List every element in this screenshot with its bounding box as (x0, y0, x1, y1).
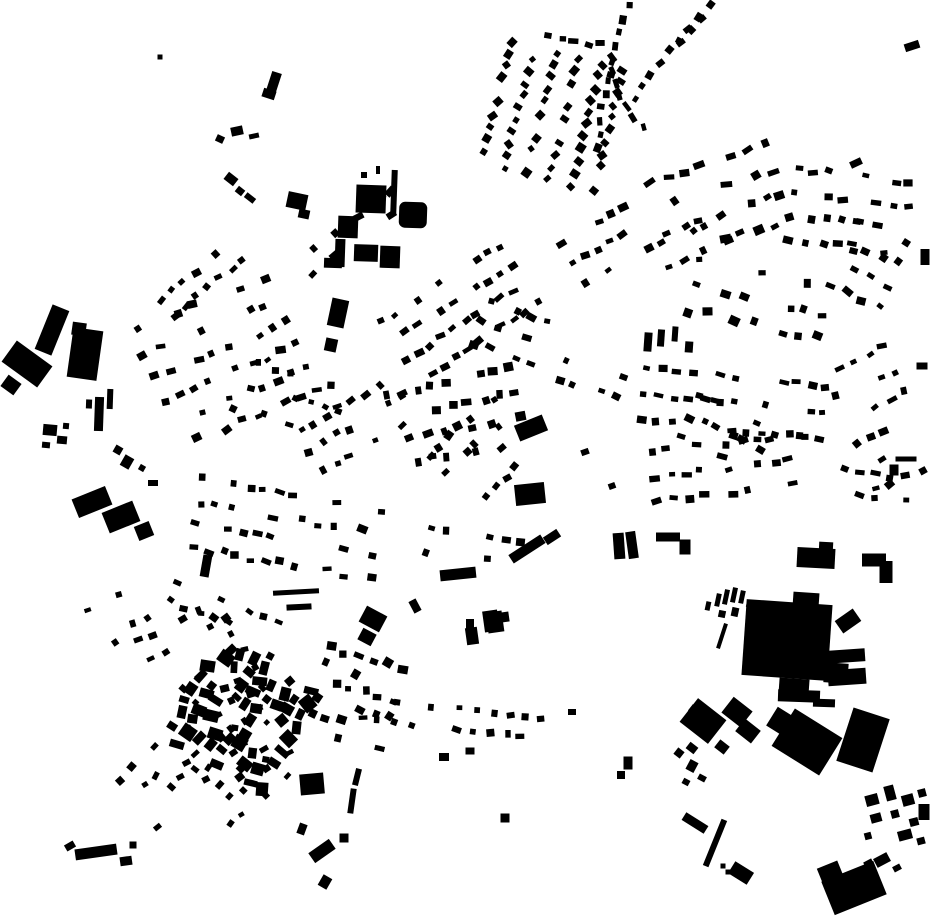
building-footprint (772, 459, 781, 467)
building-footprint (221, 547, 229, 556)
building-footprint (399, 326, 410, 336)
building-chain-north-top-row (544, 32, 605, 49)
building-footprint (671, 369, 681, 375)
building-footprint (156, 343, 166, 349)
building-footprint (616, 229, 628, 240)
building-footprint (225, 792, 234, 801)
building-footprint (523, 66, 535, 77)
building-footprint (414, 296, 423, 305)
building-footprint (728, 861, 754, 885)
building-footprint (501, 536, 511, 544)
building-footprint (399, 202, 428, 229)
building-footprint (408, 722, 416, 730)
building-footprint (563, 102, 573, 112)
building-footprint (483, 248, 492, 256)
building-footprint (655, 58, 665, 68)
building-footprint (208, 612, 219, 623)
building-footprint (238, 811, 245, 818)
building-footprint (840, 465, 849, 473)
building-footprint (318, 874, 333, 889)
building-footprint (404, 433, 414, 442)
building-footprint (758, 431, 765, 436)
building-footprint (778, 330, 788, 338)
building-footprint (676, 433, 685, 440)
building-footprint (339, 574, 348, 580)
building-footprint (457, 705, 463, 710)
building-footprint (508, 288, 519, 296)
building-footprint (804, 279, 811, 288)
building-footprint (285, 421, 294, 428)
building-footprint (320, 714, 330, 723)
building-footprint (215, 134, 225, 144)
building-footprint (515, 734, 524, 740)
building-footprint (86, 399, 92, 408)
building-footprint (472, 447, 480, 456)
building-footprint (856, 296, 867, 306)
building-footprint (909, 817, 920, 827)
building-footprint (793, 592, 820, 609)
building-footprint (166, 782, 176, 792)
building-footprint (247, 385, 256, 393)
building-footprint (449, 401, 458, 409)
building-footprint (259, 745, 269, 754)
building-cluster-ne-suburb-b (682, 257, 826, 341)
building-footprint (215, 780, 225, 790)
building-footprint (779, 379, 790, 386)
building-footprint (486, 123, 495, 131)
building-footprint (496, 443, 506, 453)
building-footprint (428, 525, 436, 531)
building-footprint (333, 680, 342, 688)
building-footprint (443, 527, 450, 535)
building-footprint (866, 272, 875, 280)
building-footprint (247, 651, 261, 667)
building-footprint (120, 454, 135, 469)
building-footprint (63, 423, 70, 430)
building-footprint (679, 169, 690, 178)
building-footprint (786, 430, 794, 437)
building-footprint (608, 113, 616, 121)
building-footprint (594, 246, 603, 255)
building-footprint (217, 596, 225, 604)
building-footprint (235, 186, 246, 196)
building-footprint (228, 748, 238, 757)
building-footprint (791, 189, 798, 195)
building-footprint (259, 487, 266, 492)
building-footprint (390, 170, 398, 214)
building-footprint (526, 360, 536, 368)
building-footprint (640, 391, 647, 397)
building-footprint (338, 545, 349, 553)
building-footprint (368, 552, 377, 560)
building-footprint (741, 599, 832, 681)
building-footprint (134, 325, 143, 334)
building-footprint (896, 457, 917, 462)
figure-ground-map (0, 0, 930, 924)
building-footprint (211, 249, 221, 259)
building-footprint (64, 840, 76, 851)
building-footprint (669, 472, 675, 477)
building-footprint (492, 482, 501, 491)
building-footprint (264, 356, 271, 363)
building-footprint (506, 712, 515, 719)
building-footprint (636, 415, 647, 424)
building-footprint (224, 172, 239, 186)
building-footprint (284, 772, 292, 780)
building-footprint (835, 609, 862, 634)
building-footprint (813, 699, 835, 708)
building-footprint (673, 747, 684, 758)
building-footprint (298, 426, 306, 433)
building-footprint (422, 428, 434, 438)
building-footprint (415, 386, 422, 395)
building-footprint (466, 748, 475, 755)
building-footprint (189, 384, 199, 393)
building-footprint (520, 80, 529, 89)
building-footprint (226, 819, 234, 828)
building-footprint (360, 390, 371, 401)
building-footprint (685, 495, 694, 503)
building-footprint (543, 175, 552, 183)
building-footprint (189, 544, 198, 550)
building-footprint (210, 501, 218, 508)
building-footprint (359, 715, 368, 720)
building-footprint (545, 70, 556, 80)
building-footprint (624, 757, 633, 770)
building-footprint (234, 771, 245, 782)
building-footprint (725, 466, 733, 473)
building-footprint (767, 168, 780, 177)
building-footprint (836, 707, 889, 772)
building-footprint (784, 212, 794, 222)
building-footprint (226, 396, 233, 401)
building-footprint (177, 278, 185, 286)
building-footprint (487, 367, 498, 376)
building-footprint (436, 306, 446, 316)
building-footprint (377, 317, 385, 325)
building-footprint (598, 388, 606, 395)
building-footprint (245, 608, 254, 616)
building-footprint (664, 174, 675, 180)
building-footprint (190, 519, 200, 527)
building-chain-north-chain-c (676, 0, 716, 48)
building-footprint (849, 247, 859, 255)
building-footprint (167, 286, 175, 294)
building-footprint (190, 765, 199, 774)
building-footprint (236, 285, 245, 293)
building-footprint (720, 289, 732, 299)
building-footprint (361, 172, 367, 178)
building-footprint (837, 196, 848, 203)
building-footprint (327, 381, 335, 389)
building-footprint (324, 258, 342, 269)
building-footprint (274, 488, 285, 496)
building-footprint (259, 612, 268, 620)
building-footprint (148, 631, 158, 640)
building-footprint (428, 704, 434, 711)
building-footprint (864, 832, 873, 841)
building-cluster-center-e (383, 362, 527, 467)
building-cluster-east-suburb-e (840, 465, 909, 503)
building-footprint (439, 362, 450, 372)
building-footprint (209, 758, 224, 771)
building-footprint (886, 475, 894, 482)
building-footprint (230, 661, 237, 673)
building-footprint (273, 588, 319, 595)
building-footprint (575, 142, 587, 154)
building-footprint (665, 264, 673, 271)
building-footprint (408, 598, 421, 613)
building-footprint (485, 342, 496, 352)
building-footprint (699, 491, 709, 498)
building-footprint (656, 533, 680, 542)
building-footprint (782, 455, 793, 463)
building-footprint (237, 256, 246, 265)
building-footprint (502, 165, 509, 172)
building-footprint (225, 343, 233, 350)
building-footprint (148, 480, 158, 486)
building-footprint (126, 761, 137, 772)
building-footprint (841, 285, 853, 297)
building-footprint (309, 244, 318, 253)
building-footprint (258, 660, 270, 675)
building-footprint (510, 315, 519, 323)
building-footprint (531, 133, 542, 144)
building-footprint (336, 714, 348, 725)
building-footprint (134, 521, 154, 541)
building-footprint (883, 784, 897, 801)
building-footprint (439, 753, 449, 761)
building-footprint (376, 166, 380, 174)
building-footprint (470, 729, 476, 735)
building-footprint (513, 102, 523, 111)
building-footprint (484, 555, 491, 562)
building-footprint (228, 504, 235, 511)
building-footprint (742, 429, 749, 437)
building-footprint (566, 182, 575, 191)
building-cluster-center-f (189, 473, 385, 581)
building-footprint (428, 369, 439, 378)
building-footprint (256, 359, 261, 366)
building-footprint (919, 804, 930, 820)
building-footprint (178, 695, 189, 704)
building-footprint (625, 531, 639, 559)
building-footprint (289, 694, 300, 706)
building-footprint (274, 713, 289, 728)
building-footprint (0, 375, 21, 396)
building-footprint (261, 694, 272, 705)
building-footprint (714, 739, 730, 754)
building-footprint (883, 283, 893, 291)
building-footprint (535, 110, 546, 121)
building-footprint (451, 725, 462, 734)
building-footprint (332, 428, 341, 437)
building-footprint (440, 567, 477, 582)
building-footprint (158, 55, 163, 60)
building-footprint (425, 342, 435, 352)
building-footprint (870, 470, 881, 477)
building-footprint (699, 246, 708, 255)
building-footprint (321, 657, 330, 667)
building-footprint (512, 355, 521, 362)
building-footprint (452, 420, 464, 431)
building-footprint (448, 298, 458, 307)
building-footprint (692, 280, 701, 288)
building-footprint (682, 812, 709, 833)
building-footprint (509, 461, 519, 471)
building-footprint (664, 44, 674, 54)
building-footprint (503, 49, 514, 60)
building-footprint (700, 222, 709, 231)
building-footprint (432, 406, 441, 414)
building-footprint (661, 445, 670, 452)
building-footprint (802, 239, 809, 247)
building-footprint (568, 65, 580, 77)
building-footprint (191, 432, 203, 443)
building-footprint (595, 40, 604, 46)
building-footprint (94, 397, 104, 431)
building-footprint (760, 138, 770, 148)
building-footprint (382, 656, 395, 669)
building-footprint (239, 786, 248, 795)
building-footprint (584, 41, 593, 49)
building-footprint (441, 379, 451, 387)
building-footprint (273, 376, 285, 386)
building-footprint (901, 793, 915, 807)
building-footprint (643, 332, 652, 352)
building-footprint (472, 282, 480, 290)
building-footprint (319, 465, 328, 475)
building-footprint (697, 773, 707, 782)
building-footprint (555, 376, 566, 386)
building-footprint (728, 491, 738, 498)
building-footprint (566, 79, 576, 89)
building-footprint (855, 469, 865, 475)
building-footprint (194, 356, 205, 364)
building-footprint (605, 209, 615, 219)
building-footprint (710, 422, 720, 431)
building-footprint (796, 432, 804, 440)
building-footprint (356, 184, 387, 213)
building-footprint (412, 320, 423, 330)
building-footprint (482, 492, 491, 501)
building-footprint (290, 562, 298, 571)
building-footprint (286, 191, 309, 211)
building-footprint (604, 123, 615, 134)
building-footprint (148, 371, 159, 381)
building-footprint (617, 771, 625, 779)
building-footprint (685, 759, 698, 773)
building-footprint (543, 529, 561, 545)
building-footprint (574, 54, 583, 63)
building-cluster-east-suburb-a (636, 365, 829, 443)
building-footprint (230, 480, 236, 487)
building-footprint (237, 415, 247, 423)
building-footprint (891, 369, 899, 376)
building-footprint (916, 837, 926, 846)
building-footprint (878, 374, 886, 381)
building-footprint (288, 492, 297, 498)
building-footprint (580, 448, 590, 456)
building-footprint (807, 215, 816, 224)
building-footprint (505, 730, 510, 738)
building-footprint (589, 185, 600, 195)
building-footprint (904, 203, 913, 209)
building-footprint (762, 401, 770, 409)
building-footprint (563, 357, 570, 364)
building-footprint (819, 542, 834, 553)
building-footprint (770, 222, 779, 230)
building-footprint (512, 116, 520, 124)
building-footprint (871, 495, 878, 501)
building-footprint (597, 117, 603, 126)
building-footprint (286, 603, 311, 610)
building-footprint (335, 460, 342, 467)
building-footprint (596, 160, 606, 170)
building-footprint (750, 316, 759, 326)
building-footprint (331, 523, 337, 530)
building-cluster-north-estate (479, 37, 627, 196)
building-footprint (314, 523, 321, 529)
building-footprint (788, 306, 795, 313)
building-footprint (274, 618, 283, 625)
building-footprint (248, 485, 256, 493)
building-footprint (477, 370, 486, 378)
building-footprint (897, 828, 913, 841)
building-footprint (560, 36, 567, 42)
building-footprint (260, 274, 271, 284)
building-footprint (239, 529, 249, 538)
building-footprint (900, 387, 907, 396)
building-footprint (507, 261, 518, 272)
building-footprint (521, 333, 532, 342)
building-footprint (799, 304, 808, 313)
building-footprint (327, 298, 349, 329)
building-footprint (179, 605, 188, 613)
building-footprint (42, 442, 50, 449)
building-footprint (443, 453, 449, 462)
building-footprint (401, 355, 411, 365)
building-footprint (363, 686, 370, 695)
building-cluster-center-l (555, 357, 628, 402)
building-footprint (304, 448, 314, 457)
building-footprint (544, 32, 552, 39)
building-footprint (744, 486, 751, 494)
building-footprint (353, 651, 364, 660)
building-footprint (308, 839, 335, 863)
building-footprint (849, 157, 863, 168)
building-footprint (191, 268, 202, 278)
building-footprint (686, 742, 699, 754)
building-footprint (322, 412, 333, 422)
building-footprint (161, 398, 170, 406)
building-footprint (494, 292, 505, 303)
building-footprint (422, 548, 430, 557)
building-footprint (651, 418, 659, 426)
building-footprint (611, 391, 622, 401)
building-footprint (669, 418, 676, 424)
building-footprint (850, 359, 858, 366)
building-footprint (74, 844, 117, 861)
building-cluster-center-k (556, 202, 655, 289)
building-footprint (782, 235, 793, 245)
building-footprint (231, 364, 239, 371)
building-footprint (870, 812, 883, 824)
building-footprint (818, 313, 827, 318)
building-footprint (201, 775, 210, 784)
building-footprint (249, 133, 260, 140)
building-footprint (819, 410, 825, 415)
